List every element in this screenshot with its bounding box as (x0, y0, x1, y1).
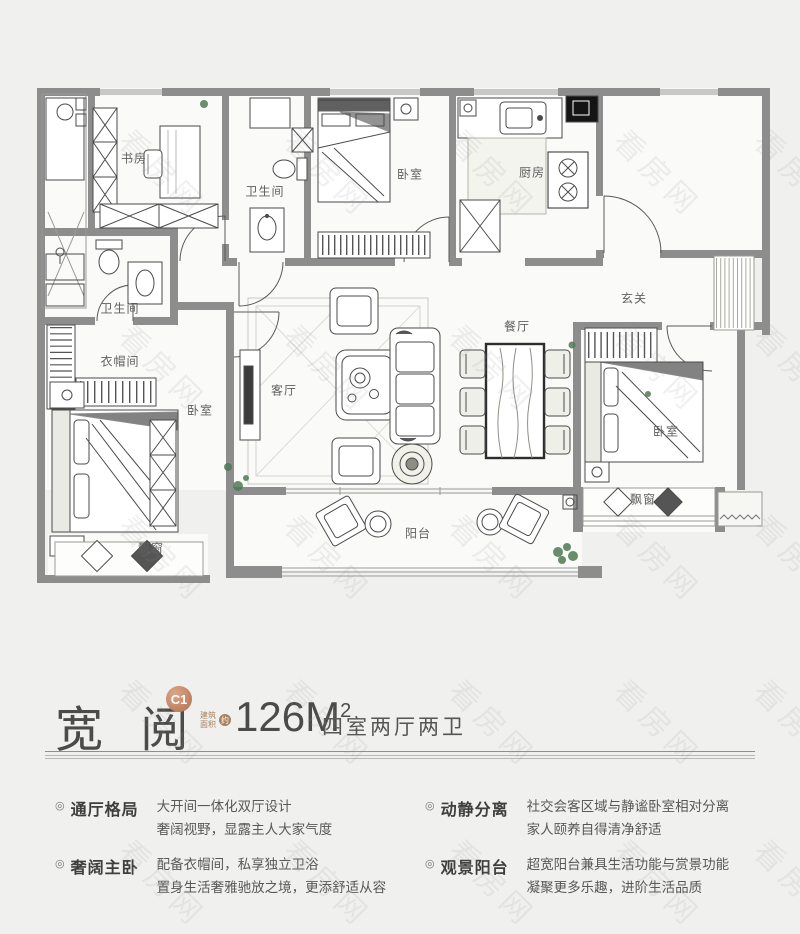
feature-desc-line: 社交会客区域与静谧卧室相对分离 (527, 796, 730, 819)
window-foyer (660, 88, 718, 96)
feature-desc-line: 置身生活奢雅驰放之境，更添舒适从容 (157, 877, 387, 900)
room-label-bedroom-master: 卧室 (187, 402, 213, 419)
feature-item-4: ◎ 观景阳台 超宽阳台兼具生活功能与赏景功能 凝聚更多乐趣，进阶生活品质 (425, 854, 755, 899)
room-label-study: 书房 (121, 150, 147, 167)
room-label-dining: 餐厅 (504, 318, 530, 335)
room-label-balcony: 阳台 (405, 525, 431, 542)
unit-type-badge: C1 (166, 686, 192, 712)
window-kitchen (474, 88, 558, 96)
window-bedroom-top (330, 88, 420, 96)
watermark-text: 看房网 (745, 668, 800, 775)
dining-furniture (460, 344, 570, 458)
area-note-line1: 建筑 (200, 711, 216, 720)
bullseye-icon: ◎ (425, 857, 435, 870)
feature-item-3: ◎ 奢阔主卧 配备衣帽间，私享独立卫浴 置身生活奢雅驰放之境，更添舒适从容 (55, 854, 425, 899)
bullseye-icon: ◎ (55, 799, 65, 812)
layout-text: 四室两厅两卫 (322, 711, 466, 741)
window-study (100, 88, 162, 96)
feature-desc: 超宽阳台兼具生活功能与赏景功能 凝聚更多乐趣，进阶生活品质 (527, 854, 730, 899)
bullseye-icon: ◎ (425, 799, 435, 812)
feature-list: ◎ 通厅格局 大开间一体化双厅设计 奢阔视野，显露主人大家气度 ◎ 动静分离 社… (55, 796, 755, 899)
watermark-text: 看房网 (605, 668, 712, 775)
area-approx-badge: 约 (219, 714, 231, 726)
feature-desc-line: 配备衣帽间，私享独立卫浴 (157, 854, 387, 877)
feature-desc: 社交会客区域与静谧卧室相对分离 家人颐养自得清净舒适 (527, 796, 730, 841)
separator-line-dark (45, 751, 755, 752)
feature-desc: 配备衣帽间，私享独立卫浴 置身生活奢雅驰放之境，更添舒适从容 (157, 854, 387, 899)
area-note-line2: 面积 (200, 720, 216, 729)
foyer-closet (714, 256, 754, 330)
room-label-baywindow-left: 飘窗 (138, 540, 164, 557)
feature-desc-line: 大开间一体化双厅设计 (157, 796, 333, 819)
feature-item-1: ◎ 通厅格局 大开间一体化双厅设计 奢阔视野，显露主人大家气度 (55, 796, 425, 841)
feature-title: 通厅格局 (71, 796, 157, 820)
feature-desc-line: 奢阔视野，显露主人大家气度 (157, 819, 333, 842)
bullseye-icon: ◎ (55, 857, 65, 870)
room-label-bedroom-right: 卧室 (653, 423, 679, 440)
area-note: 建筑 面积 (200, 711, 216, 729)
room-label-living: 客厅 (271, 382, 297, 399)
room-label-bedroom-top: 卧室 (397, 166, 423, 183)
feature-desc: 大开间一体化双厅设计 奢阔视野，显露主人大家气度 (157, 796, 333, 841)
feature-item-2: ◎ 动静分离 社交会客区域与静谧卧室相对分离 家人颐养自得清净舒适 (425, 796, 755, 841)
floorplan-page: 书房卫生间卧室厨房玄关餐厅客厅卫生间衣帽间卧室卧室阳台飘窗飘窗 宽 阅 C1 建… (0, 0, 800, 934)
room-label-bath-top: 卫生间 (245, 183, 284, 200)
feature-desc-line: 家人颐养自得清净舒适 (527, 819, 730, 842)
room-label-kitchen: 厨房 (519, 164, 545, 181)
feature-title: 观景阳台 (441, 854, 527, 878)
room-label-baywindow-right: 飘窗 (630, 491, 656, 508)
feature-desc-line: 超宽阳台兼具生活功能与赏景功能 (527, 854, 730, 877)
feature-title: 奢阔主卧 (71, 854, 157, 878)
room-label-cloakroom: 衣帽间 (100, 353, 139, 370)
room-label-foyer: 玄关 (621, 290, 647, 307)
separator-line-light (45, 755, 755, 759)
feature-desc-line: 凝聚更多乐趣，进阶生活品质 (527, 877, 730, 900)
balcony-sliding-door (286, 487, 492, 495)
ac-platform (718, 492, 762, 526)
baywindow-left-drawing (55, 540, 203, 576)
room-label-bath-master: 卫生间 (100, 300, 139, 317)
feature-title: 动静分离 (441, 796, 527, 820)
